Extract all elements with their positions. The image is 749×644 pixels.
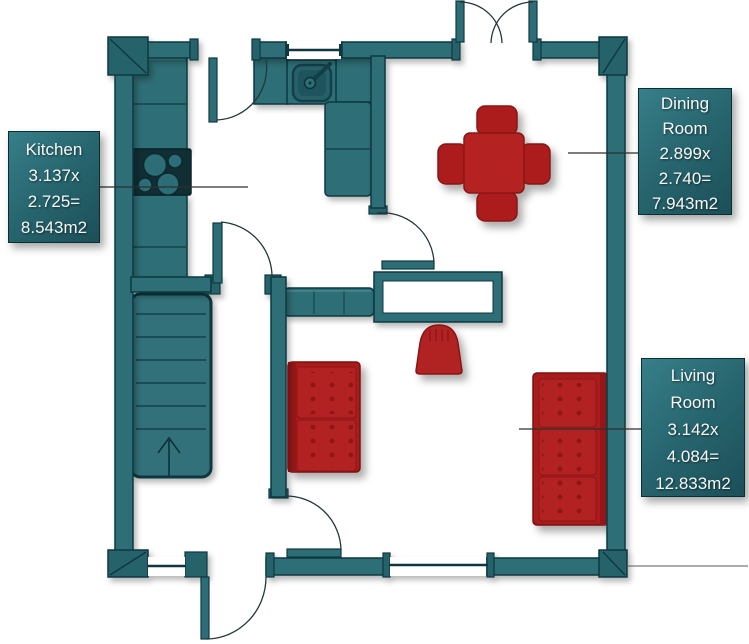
right-wall xyxy=(607,42,625,575)
dining-chair xyxy=(477,106,517,135)
living-label-name2: Room xyxy=(642,389,744,416)
hob xyxy=(133,149,191,195)
french-doors xyxy=(456,1,537,43)
dining-label-depth: 2.740= xyxy=(639,166,731,191)
dining-table xyxy=(464,133,524,193)
bench xyxy=(284,288,374,316)
dining-label-area: 7.943m2 xyxy=(639,191,731,216)
top-wall xyxy=(258,42,286,58)
living-label-area: 12.833m2 xyxy=(642,470,744,497)
living-room-label: Living Room 3.142x 4.084= 12.833m2 xyxy=(641,358,745,497)
front-door xyxy=(201,577,266,639)
top-wall xyxy=(342,42,454,58)
left-wall xyxy=(115,42,133,575)
floor-plan: Kitchen 3.137x 2.725= 8.543m2 Dining Roo… xyxy=(0,0,749,644)
bottom-right-window xyxy=(389,557,488,576)
dining-chair xyxy=(438,144,467,184)
armchair xyxy=(416,325,462,374)
sofa-3-seat xyxy=(533,373,608,525)
dining-set xyxy=(438,106,550,221)
dining-label-name2: Room xyxy=(639,116,731,141)
dining-label-name1: Dining xyxy=(639,91,731,116)
kitchen-label-name: Kitchen xyxy=(9,137,99,163)
kitchen-label-width: 3.137x xyxy=(9,163,99,189)
hall-living-wall xyxy=(271,277,286,497)
bottom-wall xyxy=(489,558,610,575)
bottom-wall xyxy=(266,558,388,575)
living-label-width: 3.142x xyxy=(642,416,744,443)
dining-room-label: Dining Room 2.899x 2.740= 7.943m2 xyxy=(638,88,732,215)
living-room-door xyxy=(285,496,341,557)
kitchen-dining-door xyxy=(377,213,434,269)
kitchen-hall-door xyxy=(213,222,272,283)
console-table xyxy=(374,272,502,322)
dining-label-width: 2.899x xyxy=(639,141,731,166)
dining-chair xyxy=(521,144,550,184)
kitchen-label-area: 8.543m2 xyxy=(9,215,99,241)
top-window xyxy=(286,41,342,59)
living-label-name1: Living xyxy=(642,362,744,389)
stairs xyxy=(131,294,211,477)
floor-plan-canvas xyxy=(0,0,749,644)
sink xyxy=(293,64,331,101)
living-label-depth: 4.084= xyxy=(642,443,744,470)
dining-chair xyxy=(477,192,517,221)
sofa-2-seat xyxy=(288,362,360,472)
kitchen-room-label: Kitchen 3.137x 2.725= 8.543m2 xyxy=(8,131,100,243)
kitchen-label-depth: 2.725= xyxy=(9,189,99,215)
kitchen-dining-wall xyxy=(371,56,385,208)
top-wall xyxy=(146,42,190,58)
kitchen-hall-wall xyxy=(131,277,211,292)
bottom-left-window xyxy=(147,557,186,576)
